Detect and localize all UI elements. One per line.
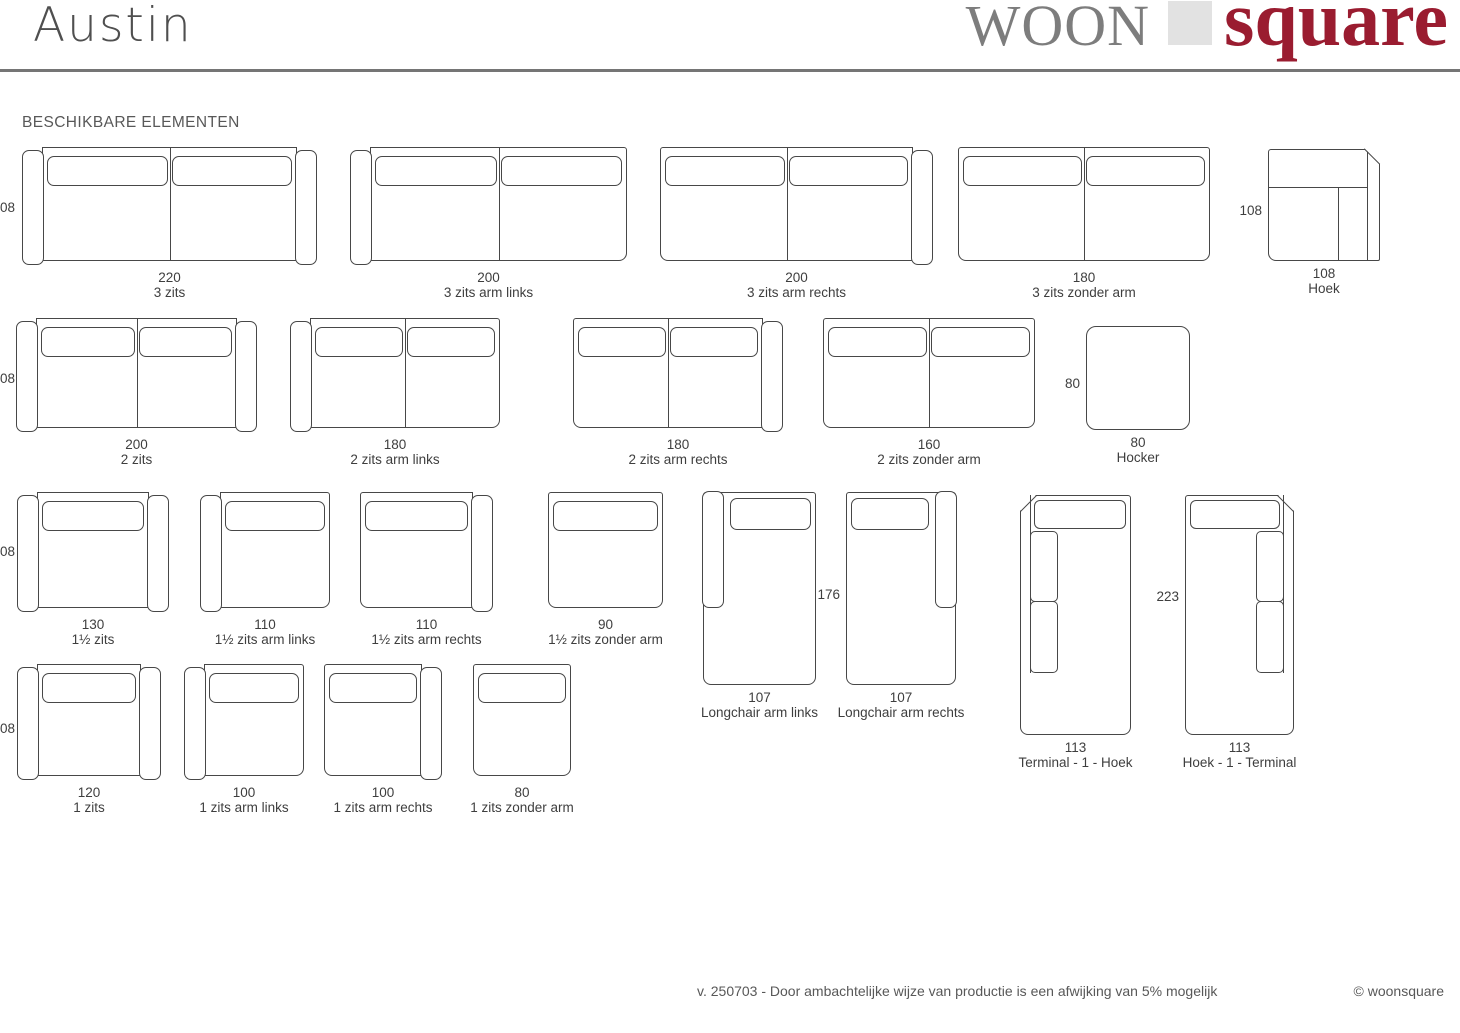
sofa-body — [958, 147, 1210, 261]
back-cushion-strip — [963, 156, 1205, 186]
back-cushion-strip — [42, 501, 144, 531]
side-cushion — [1030, 601, 1058, 673]
element-label: 3 zits zonder arm — [928, 285, 1240, 300]
element-1half-zits-arm-links — [200, 492, 330, 612]
element-dim: 110 — [330, 617, 523, 632]
edge-height-dim: 08 — [0, 371, 17, 386]
back-cushion — [42, 501, 144, 531]
element-1-zits — [17, 664, 161, 780]
element-caption: 2003 zits arm rechts — [630, 270, 963, 300]
back-cushion-strip — [365, 501, 468, 531]
element-dim: 90 — [518, 617, 693, 632]
back-cushion — [963, 156, 1082, 186]
back-cushion-strip — [42, 673, 136, 703]
arm-right — [420, 667, 442, 780]
element-1half-zits — [17, 492, 169, 612]
arm-left — [200, 495, 222, 612]
back-cushion-strip — [329, 673, 417, 703]
element-dim: 180 — [928, 270, 1240, 285]
element-side-dim: 176 — [804, 587, 840, 602]
back-cushion — [789, 156, 909, 186]
element-dim: 113 — [1155, 740, 1324, 755]
back-cushion — [931, 327, 1030, 357]
element-label: 2 zits zonder arm — [793, 452, 1065, 467]
element-side-dim: 108 — [1226, 203, 1262, 218]
element-3-zits-arm-links — [350, 147, 627, 265]
sofa-body — [370, 147, 627, 261]
side-cushion — [1030, 531, 1058, 602]
arm-right — [147, 495, 169, 612]
element-caption: 901½ zits zonder arm — [518, 617, 693, 647]
element-caption: 107Longchair arm rechts — [816, 690, 986, 720]
back-cushion — [172, 156, 293, 186]
back-cushion — [1190, 500, 1280, 529]
arm-left — [350, 150, 372, 265]
element-caption: 1803 zits zonder arm — [928, 270, 1240, 300]
edge-height-dim: 08 — [0, 200, 17, 215]
element-hoek-1-terminal — [1185, 495, 1294, 735]
element-1-zits-arm-links — [184, 664, 304, 780]
element-3-zits-arm-rechts — [660, 147, 933, 265]
back-cushion-strip — [375, 156, 622, 186]
element-1half-zits-arm-rechts — [360, 492, 493, 612]
footer-version-note: v. 250703 - Door ambachtelijke wijze van… — [697, 983, 1217, 999]
arm-left — [17, 495, 39, 612]
back-cushion — [1086, 156, 1205, 186]
element-caption: 2003 zits arm links — [320, 270, 657, 300]
element-longchair-arm-rechts — [846, 492, 956, 685]
side-cushion — [1256, 531, 1284, 602]
sofa-body — [204, 664, 304, 776]
element-1-zits-zonder-arm — [473, 664, 571, 780]
back-cushion — [375, 156, 497, 186]
back-cushion — [407, 327, 495, 357]
element-caption: 1802 zits arm links — [260, 437, 530, 467]
element-label: Hoek — [1238, 281, 1410, 296]
back-cushion-strip — [209, 673, 299, 703]
arm-right — [911, 150, 933, 265]
element-label: 1 zits zonder arm — [443, 800, 601, 815]
footer-copyright: © woonsquare — [1354, 983, 1444, 999]
back-cushion — [42, 673, 136, 703]
sofa-body — [548, 492, 663, 608]
arm-right — [295, 150, 317, 265]
arm-right — [761, 321, 783, 432]
edge-height-dim: 08 — [0, 544, 17, 559]
element-label: 2 zits arm links — [260, 452, 530, 467]
catalog-page: Austin WOON square BESCHIKBARE ELEMENTEN… — [0, 0, 1460, 1033]
element-2-zits-arm-rechts — [573, 318, 783, 432]
sofa-body — [37, 664, 141, 776]
back-cushion — [365, 501, 468, 531]
back-cushion-strip — [41, 327, 232, 357]
element-label: 1½ zits zonder arm — [518, 632, 693, 647]
back-cushion — [670, 327, 758, 357]
arm-left — [16, 321, 38, 432]
element-label: 3 zits arm rechts — [630, 285, 963, 300]
elements-stage: 2203 zits2003 zits arm links2003 zits ar… — [0, 0, 1460, 1033]
sofa-body — [360, 492, 473, 608]
back-cushion-strip — [478, 673, 566, 703]
element-label: Hoek - 1 - Terminal — [1155, 755, 1324, 770]
element-caption: 108Hoek — [1238, 266, 1410, 296]
back-cushion — [828, 327, 927, 357]
back-cushion — [1034, 500, 1126, 529]
element-side-dim: 80 — [1044, 376, 1080, 391]
element-1half-zits-zonder-arm — [548, 492, 663, 612]
back-cushion-strip — [553, 501, 658, 531]
element-caption: 2002 zits — [0, 437, 287, 467]
element-caption: 1802 zits arm rechts — [543, 437, 813, 467]
element-dim: 200 — [0, 437, 287, 452]
back-cushion — [578, 327, 666, 357]
arm-right — [935, 491, 957, 608]
element-dim: 180 — [260, 437, 530, 452]
sofa-body — [324, 664, 422, 776]
hoek-outline — [1268, 149, 1380, 261]
sofa-body — [310, 318, 500, 428]
element-label: 2 zits — [0, 452, 287, 467]
element-caption: 1602 zits zonder arm — [793, 437, 1065, 467]
element-3-zits-zonder-arm — [958, 147, 1210, 265]
sofa-body — [37, 492, 149, 608]
back-cushion — [139, 327, 233, 357]
sofa-body — [36, 318, 237, 428]
side-cushion — [1256, 601, 1284, 673]
element-side-dim: 223 — [1143, 589, 1179, 604]
element-1-zits-arm-rechts — [324, 664, 442, 780]
element-dim: 160 — [793, 437, 1065, 452]
sofa-body — [473, 664, 571, 776]
back-cushion — [225, 501, 325, 531]
back-cushion-strip — [665, 156, 908, 186]
element-caption: 80Hocker — [1056, 435, 1220, 465]
element-label: Hocker — [1056, 450, 1220, 465]
back-edge-line — [1269, 187, 1368, 188]
back-cushion-strip — [225, 501, 325, 531]
element-dim: 113 — [990, 740, 1161, 755]
element-2-zits-arm-links — [290, 318, 500, 432]
element-label: Longchair arm rechts — [816, 705, 986, 720]
edge-height-dim: 08 — [0, 721, 17, 736]
arm-left — [290, 321, 312, 432]
hocker-outline — [1086, 326, 1190, 430]
arm-left — [184, 667, 206, 780]
element-dim: 108 — [1238, 266, 1410, 281]
back-cushion-strip — [828, 327, 1030, 357]
element-terminal-1-hoek — [1020, 495, 1131, 735]
element-label: 3 zits arm links — [320, 285, 657, 300]
element-dim: 220 — [0, 270, 347, 285]
arm-right — [139, 667, 161, 780]
element-dim: 80 — [1056, 435, 1220, 450]
element-caption: 2203 zits — [0, 270, 347, 300]
back-cushion — [478, 673, 566, 703]
back-cushion — [47, 156, 168, 186]
back-cushion — [209, 673, 299, 703]
arm-right — [235, 321, 257, 432]
element-label: 2 zits arm rechts — [543, 452, 813, 467]
element-caption: 113Hoek - 1 - Terminal — [1155, 740, 1324, 770]
back-cushion — [730, 498, 811, 530]
element-label: 1½ zits arm rechts — [330, 632, 523, 647]
element-longchair-arm-links — [703, 492, 816, 685]
back-cushion — [501, 156, 623, 186]
element-label: Terminal - 1 - Hoek — [990, 755, 1161, 770]
sofa-body — [660, 147, 913, 261]
seat-column-line — [1338, 188, 1339, 260]
arm-left — [22, 150, 44, 265]
side-band-line — [1367, 150, 1368, 260]
element-dim: 180 — [543, 437, 813, 452]
element-hocker — [1086, 326, 1190, 430]
element-2-zits-zonder-arm — [823, 318, 1035, 432]
element-caption: 113Terminal - 1 - Hoek — [990, 740, 1161, 770]
sofa-body — [823, 318, 1035, 428]
sofa-body — [573, 318, 763, 428]
arm-right — [471, 495, 493, 612]
back-cushion — [329, 673, 417, 703]
element-dim: 200 — [630, 270, 963, 285]
back-cushion — [665, 156, 785, 186]
element-label: 3 zits — [0, 285, 347, 300]
element-3-zits — [22, 147, 317, 265]
back-cushion-strip — [315, 327, 495, 357]
element-2-zits — [16, 318, 257, 432]
back-cushion — [851, 498, 929, 530]
back-cushion — [315, 327, 403, 357]
element-dim: 200 — [320, 270, 657, 285]
element-caption: 1101½ zits arm rechts — [330, 617, 523, 647]
back-cushion-strip — [578, 327, 758, 357]
arm-left — [17, 667, 39, 780]
element-dim: 107 — [816, 690, 986, 705]
back-cushion — [553, 501, 658, 531]
element-hoek — [1268, 149, 1380, 261]
back-cushion — [41, 327, 135, 357]
sofa-body — [220, 492, 330, 608]
element-caption: 801 zits zonder arm — [443, 785, 601, 815]
element-dim: 80 — [443, 785, 601, 800]
back-cushion-strip — [47, 156, 292, 186]
sofa-body — [42, 147, 297, 261]
arm-left — [702, 491, 724, 608]
